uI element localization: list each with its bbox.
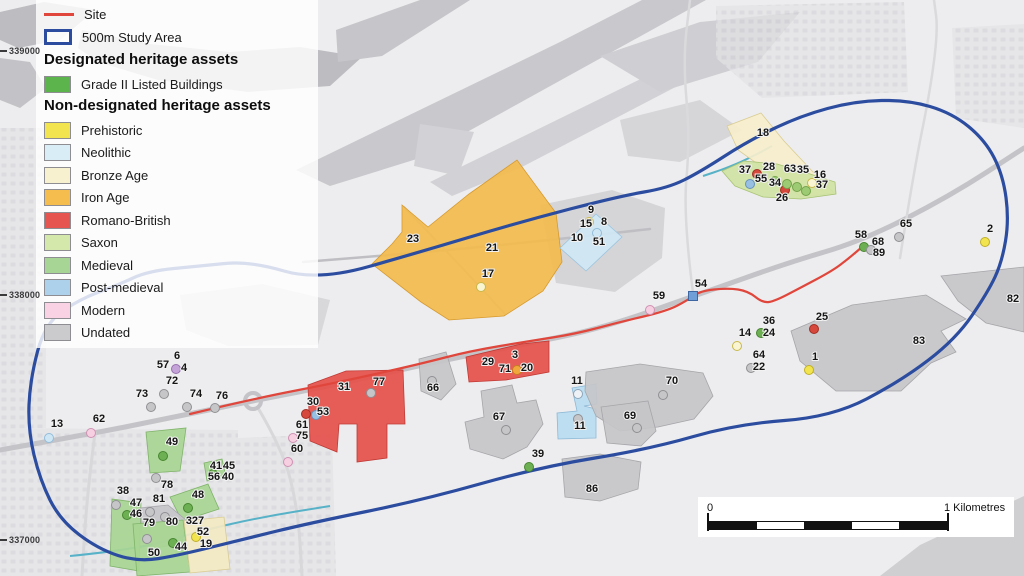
- asset-marker[interactable]: [284, 458, 293, 467]
- asset-number-label: 54: [695, 278, 708, 290]
- asset-number-label: 37: [739, 164, 751, 176]
- asset-number-label: 28: [763, 161, 775, 173]
- asset-marker[interactable]: [211, 404, 220, 413]
- asset-number-label: 13: [51, 418, 63, 430]
- heritage-assets-map: 1837286335165534372626558688998151051232…: [0, 0, 1024, 576]
- asset-marker[interactable]: [733, 342, 742, 351]
- asset-number-label: 25: [816, 311, 828, 323]
- modern-swatch: [44, 302, 71, 319]
- urban-area: [238, 434, 336, 576]
- asset-number-label: 15: [580, 218, 592, 230]
- asset-number-label: 34: [769, 177, 782, 189]
- scale-tick-left: [707, 513, 709, 531]
- asset-marker[interactable]: [659, 391, 668, 400]
- legend-item-iron-age: Iron Age: [44, 188, 129, 208]
- asset-number-label: 4: [181, 362, 188, 374]
- asset-marker[interactable]: [152, 474, 161, 483]
- asset-marker[interactable]: [502, 426, 511, 435]
- legend-study-area: 500m Study Area: [44, 27, 182, 47]
- asset-number-label: 65: [900, 218, 912, 230]
- grade2-swatch: [44, 76, 71, 93]
- asset-marker[interactable]: [172, 365, 181, 374]
- asset-number-label: 67: [493, 411, 505, 423]
- bronze-age-swatch: [44, 167, 71, 184]
- site-line-swatch: [44, 13, 74, 16]
- asset-number-label: 29: [482, 356, 494, 368]
- prehistoric-swatch: [44, 122, 71, 139]
- scale-segment: [852, 522, 900, 529]
- asset-marker[interactable]: [367, 389, 376, 398]
- saxon-swatch: [44, 234, 71, 251]
- asset-number-label: 58: [855, 229, 867, 241]
- asset-marker[interactable]: [574, 390, 583, 399]
- asset-marker[interactable]: [793, 183, 802, 192]
- legend-item-bronze-age: Bronze Age: [44, 165, 148, 185]
- asset-number-label: 23: [407, 233, 419, 245]
- asset-number-label: 56: [208, 471, 220, 483]
- asset-marker[interactable]: [159, 452, 168, 461]
- grid-label-339000: 339000: [0, 46, 40, 56]
- asset-number-label: 26: [776, 192, 788, 204]
- asset-number-label: 9: [588, 204, 594, 216]
- asset-number-label: 82: [1007, 293, 1019, 305]
- asset-number-label: 62: [93, 413, 105, 425]
- asset-marker[interactable]: [143, 535, 152, 544]
- scale-segment: [804, 522, 852, 529]
- asset-marker[interactable]: [146, 508, 155, 517]
- legend-item-prehistoric-label: Prehistoric: [81, 123, 142, 138]
- legend-item-romano-british: Romano-British: [44, 210, 171, 230]
- asset-number-label: 66: [427, 382, 439, 394]
- legend-item-undated: Undated: [44, 323, 130, 343]
- asset-marker[interactable]: [87, 429, 96, 438]
- asset-number-label: 38: [117, 485, 129, 497]
- asset-number-label: 8: [601, 216, 607, 228]
- asset-number-label: 49: [166, 436, 178, 448]
- asset-number-label: 53: [317, 406, 329, 418]
- asset-number-label: 44: [175, 541, 188, 553]
- asset-marker[interactable]: [525, 463, 534, 472]
- study-area-swatch: [44, 29, 72, 45]
- asset-number-label: 18: [757, 127, 769, 139]
- asset-number-label: 55: [755, 173, 767, 185]
- grid-label-text: 339000: [9, 46, 40, 56]
- legend-designated-heading: Designated heritage assets: [44, 51, 238, 68]
- medieval-area-49: [146, 428, 186, 473]
- asset-marker[interactable]: [689, 292, 698, 301]
- legend-item-medieval-label: Medieval: [81, 258, 133, 273]
- asset-number-label: 63: [784, 163, 796, 175]
- scale-segment: [899, 522, 947, 529]
- grid-tick: [0, 50, 7, 52]
- asset-number-label: 3: [512, 349, 518, 361]
- grid-label-text: 338000: [9, 290, 40, 300]
- scale-tick-right: [947, 513, 949, 531]
- legend-item-neolithic-label: Neolithic: [81, 145, 131, 160]
- legend: Site500m Study AreaDesignated heritage a…: [0, 0, 340, 360]
- post-medieval-swatch: [44, 279, 71, 296]
- asset-number-label: 22: [753, 361, 765, 373]
- legend-item-modern: Modern: [44, 300, 125, 320]
- asset-number-label: 78: [161, 479, 173, 491]
- asset-marker[interactable]: [477, 283, 486, 292]
- scale-segment: [757, 522, 805, 529]
- asset-number-label: 37: [816, 179, 828, 191]
- asset-number-label: 76: [216, 390, 228, 402]
- asset-number-label: 14: [739, 327, 752, 339]
- legend-item-romano-british-label: Romano-British: [81, 213, 171, 228]
- asset-number-label: 73: [136, 388, 148, 400]
- legend-grade2-label: Grade II Listed Buildings: [81, 77, 223, 92]
- asset-marker[interactable]: [184, 504, 193, 513]
- asset-number-label: 20: [521, 362, 533, 374]
- asset-marker[interactable]: [783, 180, 792, 189]
- asset-number-label: 21: [486, 242, 498, 254]
- asset-number-label: 11: [571, 375, 583, 387]
- asset-marker[interactable]: [45, 434, 54, 443]
- asset-number-label: 64: [753, 349, 766, 361]
- asset-number-label: 59: [653, 290, 665, 302]
- asset-marker[interactable]: [802, 187, 811, 196]
- asset-marker[interactable]: [810, 325, 819, 334]
- asset-number-label: 19: [200, 538, 212, 550]
- scale-bar: 0 1 Kilometres: [698, 497, 1014, 537]
- asset-number-label: 86: [586, 483, 598, 495]
- asset-number-label: 40: [222, 471, 234, 483]
- asset-number-label: 10: [571, 232, 583, 244]
- asset-number-label: 52: [197, 526, 209, 538]
- asset-marker[interactable]: [646, 306, 655, 315]
- undated-swatch: [44, 324, 71, 341]
- asset-number-label: 80: [166, 516, 178, 528]
- asset-number-label: 31: [338, 381, 350, 393]
- asset-number-label: 51: [593, 236, 605, 248]
- asset-number-label: 46: [130, 508, 142, 520]
- asset-marker[interactable]: [302, 410, 311, 419]
- legend-item-bronze-age-label: Bronze Age: [81, 168, 148, 183]
- legend-item-prehistoric: Prehistoric: [44, 120, 142, 140]
- asset-number-label: 72: [166, 375, 178, 387]
- asset-marker[interactable]: [147, 403, 156, 412]
- scale-bar-segments: [708, 521, 948, 530]
- asset-number-label: 81: [153, 493, 165, 505]
- legend-grade2: Grade II Listed Buildings: [44, 74, 223, 94]
- asset-number-label: 89: [873, 247, 885, 259]
- asset-number-label: 35: [797, 164, 809, 176]
- romano-british-swatch: [44, 212, 71, 229]
- asset-marker[interactable]: [633, 424, 642, 433]
- asset-number-label: 70: [666, 375, 678, 387]
- asset-number-label: 1: [812, 351, 818, 363]
- legend-non-designated-heading: Non-designated heritage assets: [44, 97, 271, 114]
- legend-site: Site: [44, 4, 106, 24]
- grid-label-text: 337000: [9, 535, 40, 545]
- asset-number-label: 71: [499, 363, 511, 375]
- asset-number-label: 75: [296, 430, 308, 442]
- asset-marker[interactable]: [895, 233, 904, 242]
- asset-number-label: 79: [143, 517, 155, 529]
- legend-site-label: Site: [84, 7, 106, 22]
- undated-area-69: [601, 401, 656, 446]
- legend-item-modern-label: Modern: [81, 303, 125, 318]
- legend-item-neolithic: Neolithic: [44, 143, 131, 163]
- asset-marker[interactable]: [805, 366, 814, 375]
- asset-number-label: 50: [148, 547, 160, 559]
- asset-number-label: 74: [190, 388, 203, 400]
- medieval-swatch: [44, 257, 71, 274]
- legend-study-area-label: 500m Study Area: [82, 30, 182, 45]
- legend-item-iron-age-label: Iron Age: [81, 190, 129, 205]
- asset-number-label: 17: [482, 268, 494, 280]
- iron-age-swatch: [44, 189, 71, 206]
- asset-number-label: 11: [574, 420, 586, 432]
- asset-number-label: 57: [157, 359, 169, 371]
- asset-number-label: 77: [373, 376, 385, 388]
- scale-km-label: 1 Kilometres: [944, 502, 1005, 514]
- asset-number-label: 39: [532, 448, 544, 460]
- asset-marker[interactable]: [746, 180, 755, 189]
- grid-label-338000: 338000: [0, 290, 40, 300]
- asset-number-label: 2: [987, 223, 993, 235]
- legend-item-saxon: Saxon: [44, 233, 118, 253]
- grid-tick: [0, 294, 7, 296]
- legend-item-post-medieval-label: Post-medieval: [81, 280, 163, 295]
- asset-number-label: 36: [763, 315, 775, 327]
- legend-item-medieval: Medieval: [44, 255, 133, 275]
- grid-tick: [0, 539, 7, 541]
- scale-segment: [709, 522, 757, 529]
- asset-number-label: 69: [624, 410, 636, 422]
- legend-item-undated-label: Undated: [81, 325, 130, 340]
- asset-marker[interactable]: [981, 238, 990, 247]
- asset-number-label: 60: [291, 443, 303, 455]
- legend-item-post-medieval: Post-medieval: [44, 278, 163, 298]
- asset-number-label: 48: [192, 489, 204, 501]
- asset-marker[interactable]: [183, 403, 192, 412]
- asset-number-label: 24: [763, 327, 776, 339]
- legend-item-saxon-label: Saxon: [81, 235, 118, 250]
- asset-marker[interactable]: [160, 390, 169, 399]
- asset-number-label: 83: [913, 335, 925, 347]
- neolithic-swatch: [44, 144, 71, 161]
- urban-area: [952, 24, 1024, 128]
- asset-marker[interactable]: [112, 501, 121, 510]
- grid-label-337000: 337000: [0, 535, 40, 545]
